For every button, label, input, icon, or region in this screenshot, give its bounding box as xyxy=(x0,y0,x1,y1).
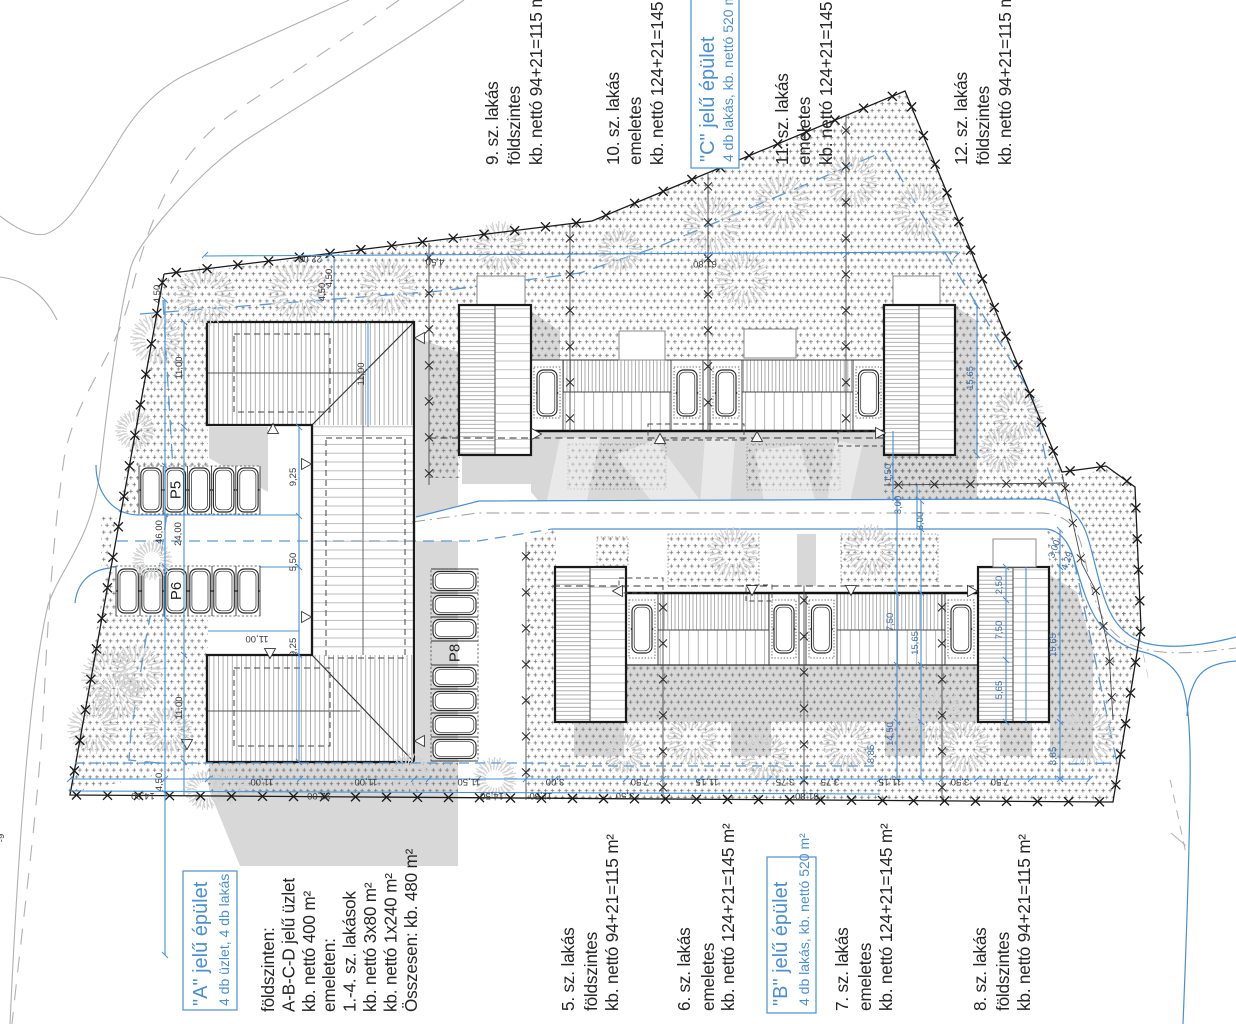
svg-text:11,00: 11,00 xyxy=(245,633,268,644)
svg-text:4,50: 4,50 xyxy=(426,256,445,267)
svg-text:6. sz. lakás: 6. sz. lakás xyxy=(674,927,694,1011)
svg-text:kb. nettó 124+21=145 m²: kb. nettó 124+21=145 m² xyxy=(647,0,667,165)
svg-text:15,65: 15,65 xyxy=(965,366,976,390)
svg-text:3,75: 3,75 xyxy=(821,776,840,787)
svg-text:61,80: 61,80 xyxy=(795,790,819,801)
svg-text:9,25: 9,25 xyxy=(288,468,299,487)
svg-text:4,50: 4,50 xyxy=(152,285,163,304)
svg-text:22,00: 22,00 xyxy=(307,790,331,801)
svg-text:11,00: 11,00 xyxy=(174,696,185,719)
svg-text:"A" jelű épület: "A" jelű épület xyxy=(190,881,212,1006)
svg-text:22,00: 22,00 xyxy=(298,253,322,264)
svg-text:24,00: 24,00 xyxy=(173,522,184,546)
svg-text:7,50: 7,50 xyxy=(631,776,650,787)
svg-text:földszintes: földszintes xyxy=(993,932,1013,1011)
svg-text:kb. nettó 1x240 m²: kb. nettó 1x240 m² xyxy=(380,873,400,1012)
svg-text:7,50: 7,50 xyxy=(994,621,1005,640)
svg-text:emeletes: emeletes xyxy=(855,943,875,1011)
svg-text:8. sz. lakás: 8. sz. lakás xyxy=(970,927,990,1011)
svg-text:5,50: 5,50 xyxy=(288,553,299,572)
svg-text:emeletes: emeletes xyxy=(625,97,645,165)
svg-text:9. sz. lakás: 9. sz. lakás xyxy=(482,81,502,165)
svg-text:kb. nettó 94+21=115 m²: kb. nettó 94+21=115 m² xyxy=(602,834,622,1011)
svg-text:14,50: 14,50 xyxy=(480,790,504,801)
svg-text:11,50: 11,50 xyxy=(457,776,480,787)
svg-text:Összesen: kb. 480 m²: Összesen: kb. 480 m² xyxy=(401,848,421,1012)
svg-text:14,00: 14,00 xyxy=(131,790,155,801)
svg-text:kb. nettó 94+21=115 m²: kb. nettó 94+21=115 m² xyxy=(995,0,1015,165)
svg-text:emeleten:: emeleten: xyxy=(319,938,339,1012)
svg-text:11,00: 11,00 xyxy=(356,362,367,385)
svg-text:61,80: 61,80 xyxy=(693,258,717,269)
svg-text:kb. nettó 94+21=115 m²: kb. nettó 94+21=115 m² xyxy=(526,0,546,165)
svg-text:11,00: 11,00 xyxy=(174,356,185,379)
svg-text:emeletes: emeletes xyxy=(794,97,814,165)
svg-text:14,50: 14,50 xyxy=(885,722,896,746)
svg-text:3,00: 3,00 xyxy=(893,496,904,515)
svg-text:földszintes: földszintes xyxy=(581,932,601,1011)
svg-text:7,50: 7,50 xyxy=(885,613,896,632)
svg-text:"C" jelű épület: "C" jelű épület xyxy=(697,36,719,162)
svg-text:A-B-C-D jelű üzlet: A-B-C-D jelű üzlet xyxy=(278,878,298,1012)
svg-text:2,50: 2,50 xyxy=(994,576,1005,595)
svg-text:1.-4. sz. lakások: 1.-4. sz. lakások xyxy=(340,891,360,1012)
svg-text:4 db üzlet, 4 db lakás: 4 db üzlet, 4 db lakás xyxy=(216,874,232,1006)
svg-text:"B" jelű épület: "B" jelű épület xyxy=(770,881,792,1006)
svg-text:P5: P5 xyxy=(167,481,184,499)
svg-text:földszintes: földszintes xyxy=(973,86,993,165)
svg-text:9,25: 9,25 xyxy=(288,638,299,657)
svg-text:11,50: 11,50 xyxy=(529,790,552,801)
svg-text:4,50: 4,50 xyxy=(154,773,165,792)
svg-text:4,50: 4,50 xyxy=(324,269,335,288)
svg-text:3,50: 3,50 xyxy=(951,776,970,787)
svg-text:-9: -9 xyxy=(0,834,7,842)
svg-text:5,65: 5,65 xyxy=(994,681,1005,700)
svg-text:P6: P6 xyxy=(168,582,185,600)
svg-text:11,15: 11,15 xyxy=(878,776,901,787)
svg-text:kb. nettó 124+21=145 m²: kb. nettó 124+21=145 m² xyxy=(816,0,836,165)
svg-text:8,85: 8,85 xyxy=(1048,747,1059,766)
svg-text:3,00: 3,00 xyxy=(546,776,565,787)
svg-text:kb. nettó 124+21=145 m²: kb. nettó 124+21=145 m² xyxy=(718,823,738,1011)
svg-text:kb. nettó 124+21=145 m²: kb. nettó 124+21=145 m² xyxy=(876,823,896,1011)
svg-text:földszintes: földszintes xyxy=(504,86,524,165)
svg-text:46,00: 46,00 xyxy=(154,520,165,544)
svg-text:kb. nettó 400 m²: kb. nettó 400 m² xyxy=(299,891,319,1012)
svg-text:15,65: 15,65 xyxy=(1048,633,1059,657)
svg-text:12. sz. lakás: 12. sz. lakás xyxy=(951,72,971,165)
svg-text:11,15: 11,15 xyxy=(695,776,718,787)
svg-text:kb. nettó 94+21=115 m²: kb. nettó 94+21=115 m² xyxy=(1014,834,1034,1011)
svg-text:8,85: 8,85 xyxy=(866,745,877,764)
svg-text:1,50: 1,50 xyxy=(883,464,894,483)
svg-text:11. sz. lakás: 11. sz. lakás xyxy=(772,73,792,165)
svg-text:6,00: 6,00 xyxy=(915,512,926,531)
svg-text:11,00: 11,00 xyxy=(354,776,377,787)
svg-text:4 db lakás, kb. nettó 520 m²: 4 db lakás, kb. nettó 520 m² xyxy=(720,0,736,162)
svg-text:kb. nettó 3x80 m²: kb. nettó 3x80 m² xyxy=(360,882,380,1012)
svg-text:3,50: 3,50 xyxy=(616,790,635,801)
svg-text:10. sz. lakás: 10. sz. lakás xyxy=(603,72,623,165)
svg-text:7,50: 7,50 xyxy=(991,776,1010,787)
svg-text:15,65: 15,65 xyxy=(910,631,921,655)
svg-text:3,75: 3,75 xyxy=(776,776,795,787)
svg-text:4 db lakás, kb. nettó 520 m²: 4 db lakás, kb. nettó 520 m² xyxy=(796,833,812,1006)
svg-text:földszinten:: földszinten: xyxy=(258,927,278,1012)
svg-text:5. sz. lakás: 5. sz. lakás xyxy=(558,927,578,1011)
svg-text:11,00: 11,00 xyxy=(250,776,273,787)
svg-text:P8: P8 xyxy=(447,644,464,662)
svg-text:emeletes: emeletes xyxy=(698,943,718,1011)
svg-text:7. sz. lakás: 7. sz. lakás xyxy=(832,927,852,1011)
